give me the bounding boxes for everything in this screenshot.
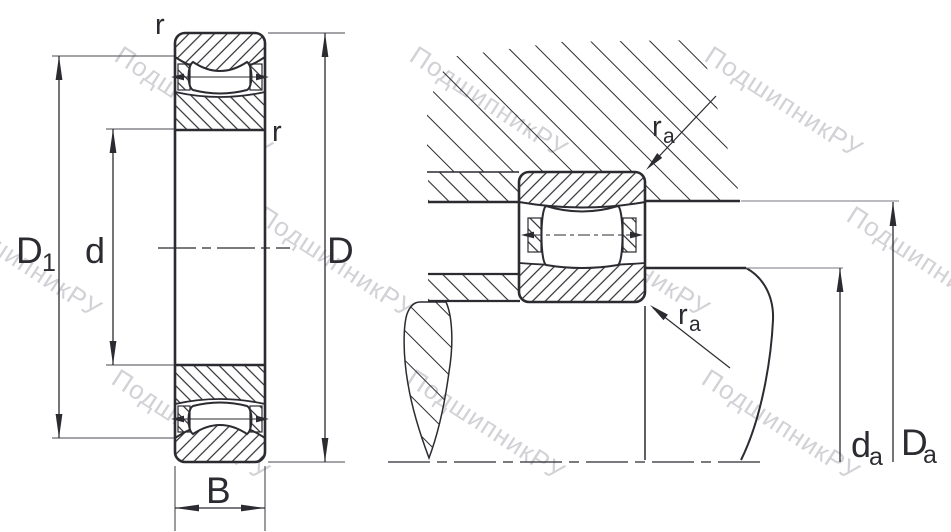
label-fillet-radius-ra-bottom-subscript: a: [689, 313, 701, 336]
label-fillet-radius-ra-top: r: [652, 111, 662, 143]
mounted-barrel-roller: [542, 206, 623, 268]
label-width-B: B: [206, 470, 231, 511]
label-corner-radius-r-top: r: [155, 9, 165, 41]
shaft-break-section: [404, 302, 452, 458]
label-shoulder-diameter-D1-subscript: 1: [42, 249, 56, 277]
label-bore-diameter-d: d: [85, 230, 105, 271]
label-housing-abutment-Da-subscript: a: [923, 441, 937, 469]
dimension-d: [106, 129, 174, 365]
label-corner-radius-r-inner: r: [272, 116, 282, 148]
bearing-technical-drawing: ПодшипникРУ ПодшипникРУ ПодшипникРУ Подш…: [0, 0, 951, 532]
label-shaft-abutment-da-subscript: a: [869, 443, 883, 471]
drawing-canvas: ПодшипникРУ ПодшипникРУ ПодшипникРУ Подш…: [0, 0, 951, 532]
mounted-outer-ring-section: [519, 172, 645, 208]
watermark-text: ПодшипникРУ: [842, 200, 951, 324]
left-view-bearing-section: D 1 d D B r r: [16, 9, 354, 531]
label-outer-diameter-D: D: [327, 230, 354, 271]
shaft-shoulder-left-section: [428, 274, 519, 301]
label-fillet-radius-ra-top-subscript: a: [663, 125, 675, 148]
label-shoulder-diameter-D1: D: [16, 230, 43, 271]
housing-shoulder-left-section: [428, 172, 519, 202]
label-fillet-radius-ra-bottom: r: [678, 299, 688, 331]
